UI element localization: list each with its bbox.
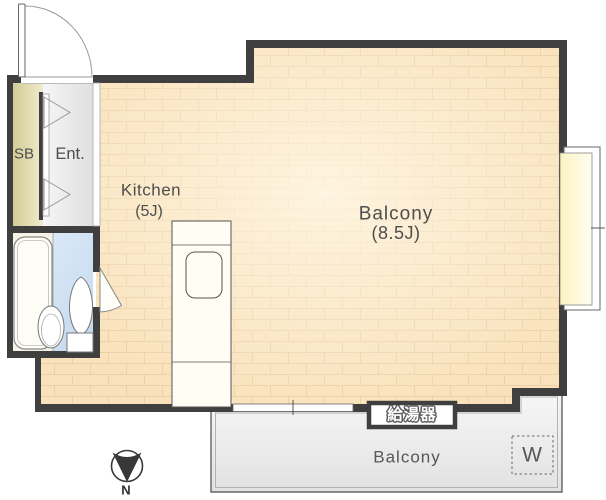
sb-ent-divider-wall (39, 92, 43, 220)
washer-label: W (522, 445, 542, 466)
balcony-label: Balcony (373, 449, 440, 466)
wall-segment (246, 40, 567, 48)
kitchen-counter (172, 221, 231, 407)
main-floor-vignette (37, 40, 563, 408)
kitchen-label: Kitchen (121, 182, 181, 199)
wall-segment (7, 226, 100, 233)
kitchen-size-label: (5J) (135, 204, 163, 220)
wall-segment (93, 307, 100, 358)
sb-label: SB (14, 147, 34, 162)
floor-plan: SB Ent. Kitchen (5J) Balcony (8.5J) 給湯器 … (0, 0, 606, 500)
north-label: N (121, 484, 130, 497)
wall-segment (35, 351, 41, 412)
compass-icon (112, 451, 143, 483)
entrance-door-leaf (19, 4, 26, 77)
main-room-label: Balcony (359, 205, 434, 224)
main-room-size-label: (8.5J) (371, 224, 420, 242)
ent-kitchen-opening (93, 83, 100, 226)
wall-segment (512, 388, 567, 396)
wall-segment (93, 75, 254, 83)
wall-segment (7, 75, 13, 358)
washbasin-pedestal (67, 333, 93, 352)
floor-plan-drawing (0, 0, 606, 500)
entrance-door-swing (25, 6, 92, 77)
bay-window-glass (560, 153, 592, 305)
kitchen-sink (186, 252, 222, 298)
wall-segment (93, 226, 100, 272)
ent-label: Ent. (55, 146, 84, 163)
water-heater-label: 給湯器 (387, 407, 437, 423)
